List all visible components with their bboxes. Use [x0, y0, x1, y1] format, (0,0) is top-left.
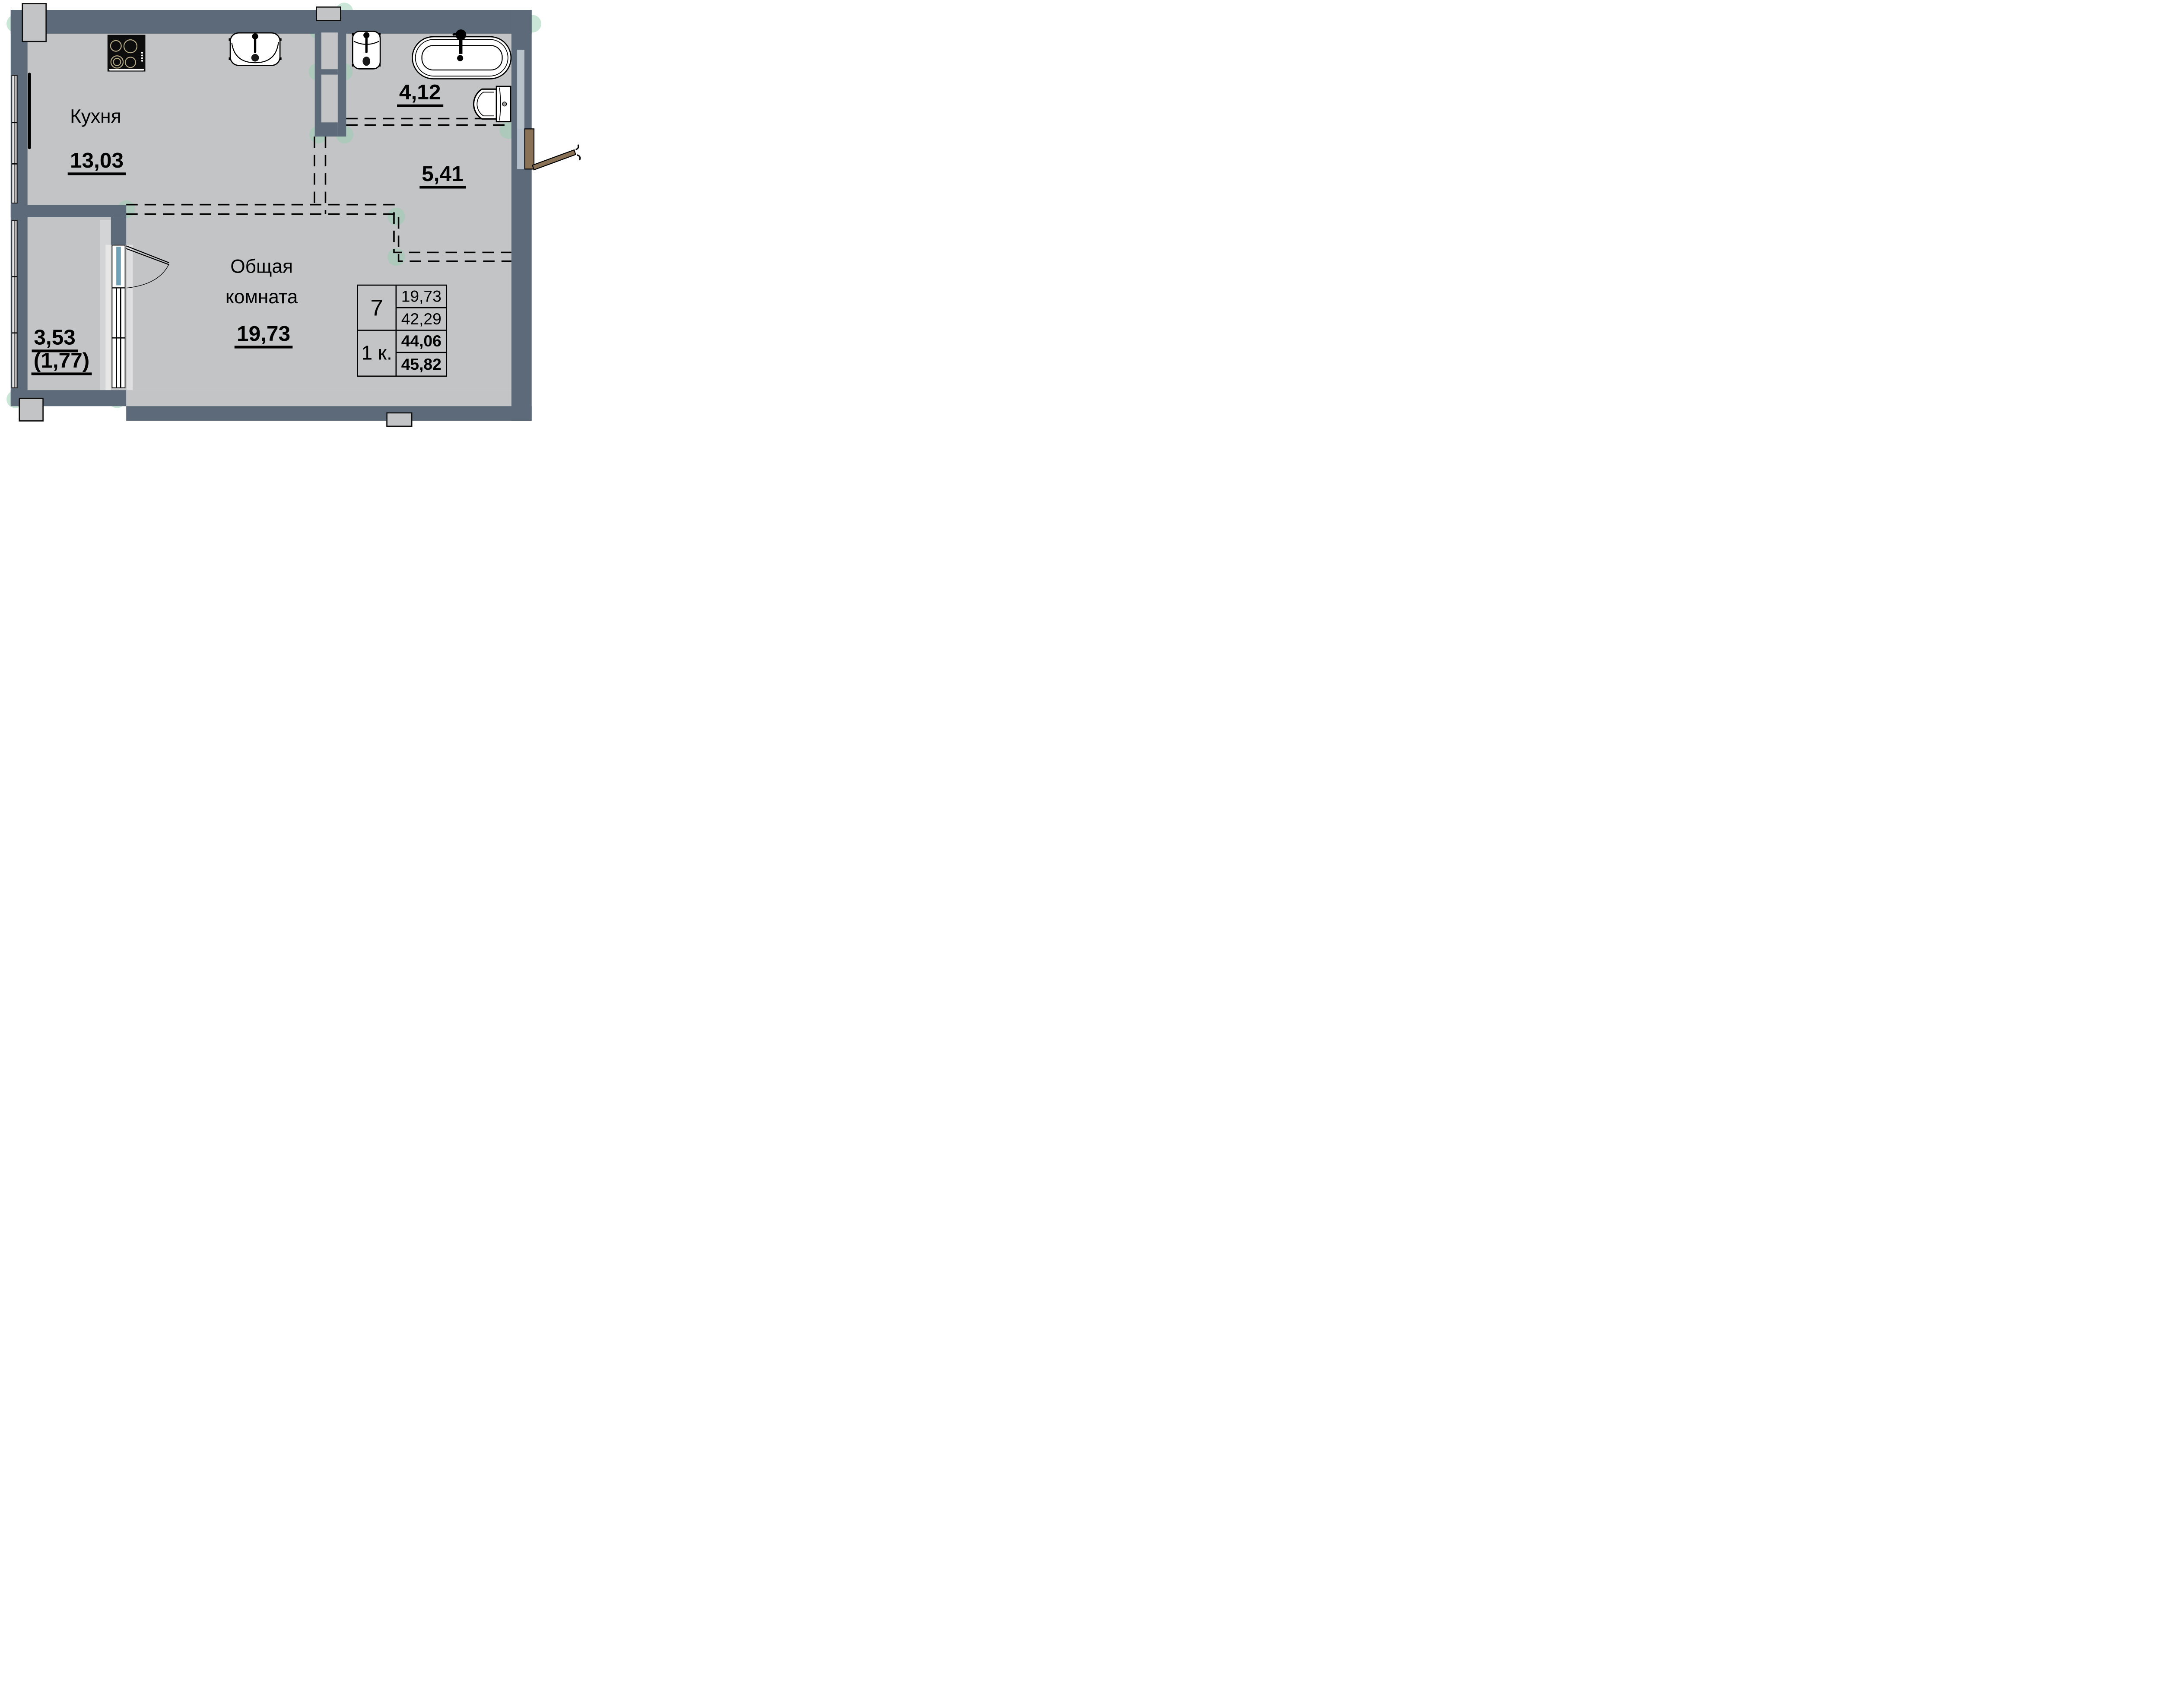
entry-door-icon — [525, 129, 580, 170]
toilet-icon — [473, 86, 511, 121]
stove-icon — [108, 35, 146, 72]
bathroom-area: 4,12 — [382, 81, 458, 107]
flat-info-table: 7 19,73 42,29 1 к. 44,06 45,82 — [357, 285, 447, 377]
bathtub-icon — [412, 29, 511, 79]
living-area-cell: 19,73 — [397, 286, 446, 308]
flat-number-cell: 7 — [358, 286, 397, 330]
area-full-cell: 45,82 — [397, 353, 446, 375]
total-area-cell: 42,29 — [397, 308, 446, 330]
livingroom-area: 19,73 — [226, 322, 302, 348]
livingroom-label-line2: комната — [223, 287, 300, 307]
radiator-icon — [28, 73, 31, 149]
balcony-door-swing — [126, 246, 169, 288]
kitchen-area: 13,03 — [58, 149, 135, 175]
area-with-coefficient-cell: 44,06 — [397, 330, 446, 353]
floorplan-canvas: Кухня 13,03 4,12 5,41 Общая комната 19,7… — [0, 0, 591, 427]
kitchen-sink-icon — [229, 33, 281, 65]
balcony-area-coefficient: (1,77) — [23, 349, 100, 375]
dashed-boundary — [126, 118, 511, 261]
floorplan-image: Кухня 13,03 4,12 5,41 Общая комната 19,7… — [0, 0, 591, 427]
flat-type-cell: 1 к. — [358, 330, 397, 375]
livingroom-label-line1: Общая — [223, 256, 300, 276]
hallway-area: 5,41 — [404, 162, 481, 188]
kitchen-label: Кухня — [57, 106, 134, 126]
bathroom-sink-icon — [352, 32, 381, 69]
